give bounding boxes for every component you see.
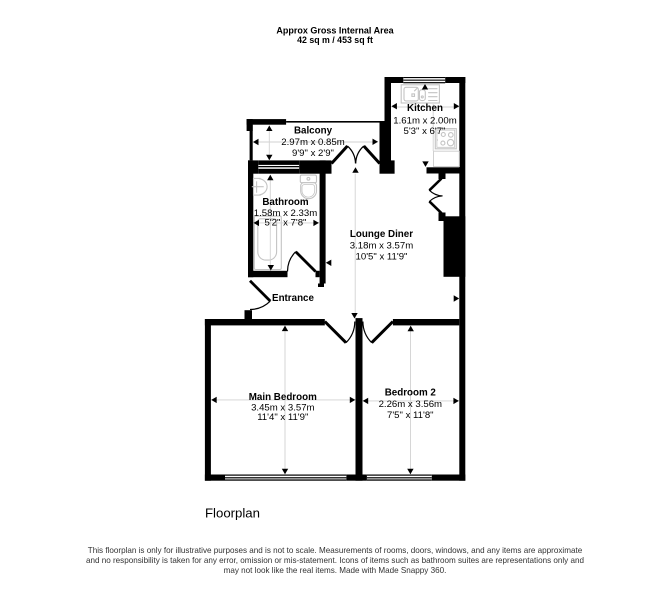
svg-text:Bedroom 2: Bedroom 2 xyxy=(385,388,437,399)
svg-text:5'2" x 7'8": 5'2" x 7'8" xyxy=(265,218,307,229)
svg-text:Approx Gross Internal Area: Approx Gross Internal Area xyxy=(276,26,394,36)
svg-text:10'5" x 11'9": 10'5" x 11'9" xyxy=(356,251,408,262)
svg-text:Bathroom: Bathroom xyxy=(262,197,309,208)
svg-text:11'4" x 11'9": 11'4" x 11'9" xyxy=(257,412,308,423)
svg-text:7'5" x 11'8": 7'5" x 11'8" xyxy=(387,410,434,421)
svg-text:3.18m x 3.57m: 3.18m x 3.57m xyxy=(350,241,413,252)
svg-text:Kitchen: Kitchen xyxy=(407,103,443,114)
svg-text:may not look like the real ite: may not look like the real items. Made w… xyxy=(224,566,447,575)
svg-text:1.61m x 2.00m: 1.61m x 2.00m xyxy=(393,115,456,126)
svg-text:Lounge Diner: Lounge Diner xyxy=(350,229,413,240)
svg-text:Balcony: Balcony xyxy=(294,126,333,137)
svg-text:Floorplan: Floorplan xyxy=(205,506,260,521)
svg-text:2.97m x 0.85m: 2.97m x 0.85m xyxy=(281,137,344,148)
svg-text:9'9" x 2'9": 9'9" x 2'9" xyxy=(292,148,334,159)
svg-text:Entrance: Entrance xyxy=(272,293,314,304)
svg-text:5'3" x 6'7": 5'3" x 6'7" xyxy=(404,126,446,137)
svg-text:This floorplan is only for ill: This floorplan is only for illustrative … xyxy=(88,546,583,555)
svg-text:and no responsibility is taken: and no responsibility is taken for any e… xyxy=(86,556,584,565)
svg-text:Main Bedroom: Main Bedroom xyxy=(249,392,317,403)
svg-text:42 sq m / 453 sq ft: 42 sq m / 453 sq ft xyxy=(297,35,373,45)
svg-text:2.26m x 3.56m: 2.26m x 3.56m xyxy=(379,399,442,410)
